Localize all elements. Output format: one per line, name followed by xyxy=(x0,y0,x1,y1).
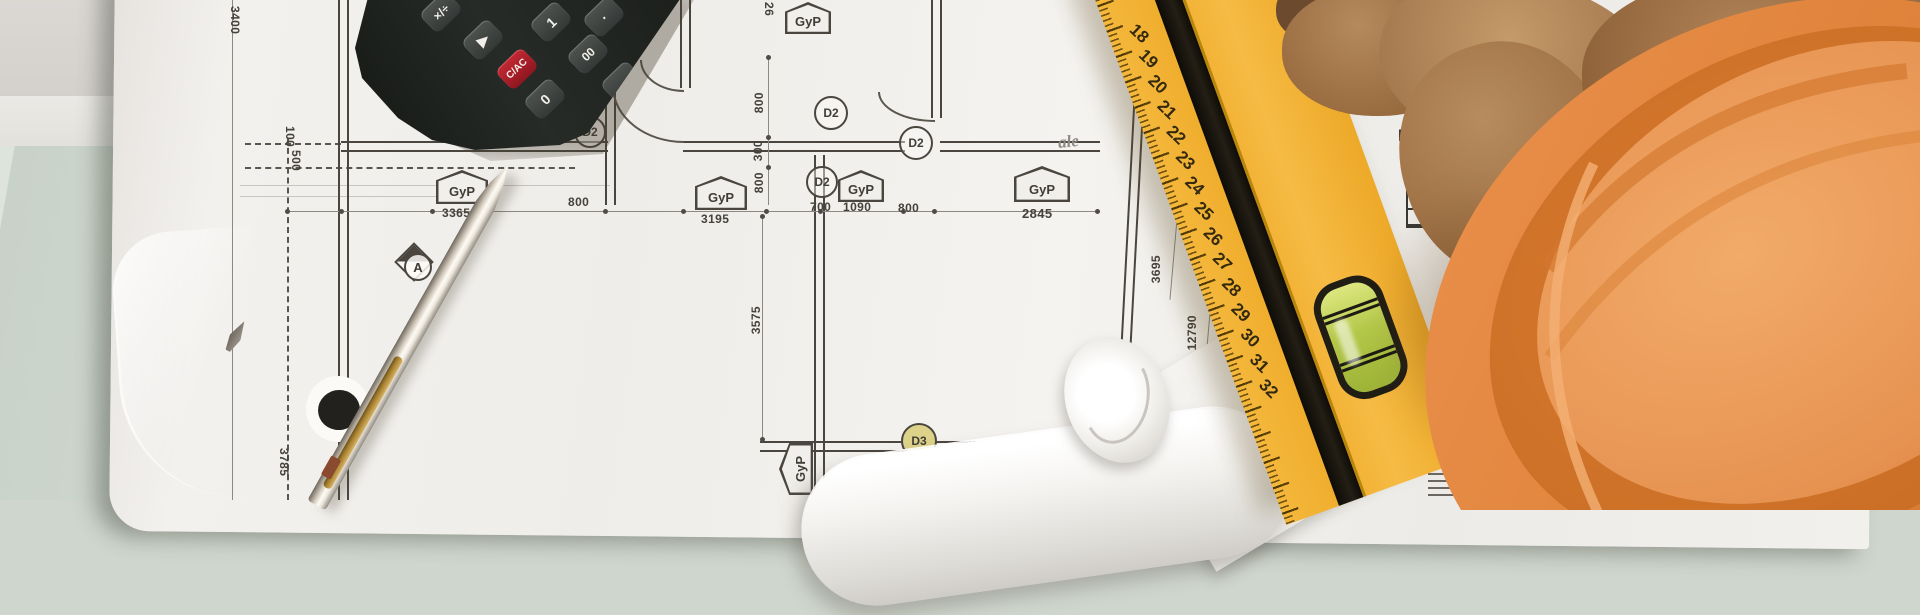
construction-desk-photo: { "scene": { "description": "Top-down ph… xyxy=(0,0,1920,500)
dimension-label: 3400 xyxy=(228,6,241,34)
dim-dot xyxy=(339,209,344,214)
calculator-key-clear: C/AC xyxy=(495,47,540,91)
dimension-label: 800 xyxy=(898,202,919,215)
dim-dot xyxy=(760,214,765,219)
dimension-label: 3575 xyxy=(750,306,763,334)
dim-dot xyxy=(681,209,686,214)
dimension-label: 800 xyxy=(753,172,766,193)
dimension-label: 26 xyxy=(762,2,775,16)
hardhat-shell xyxy=(1330,0,1920,510)
material-tag-text: GyP xyxy=(840,172,882,200)
key-label: 0 xyxy=(537,91,554,108)
dashed-axis-vertical xyxy=(287,138,289,500)
dim-dot xyxy=(285,209,290,214)
door-tag-d2: D2 xyxy=(899,126,933,160)
dimension-label: 3695 xyxy=(1150,255,1163,283)
dimension-label: 500 xyxy=(289,150,302,171)
key-label: ▶ xyxy=(473,30,493,50)
door-tag-d2: D2 xyxy=(806,166,838,198)
wall-main-horizontal-2 xyxy=(683,141,905,152)
key-label: ×/÷ xyxy=(430,1,452,23)
dimension-chain-vertical-mid xyxy=(768,55,769,205)
key-label: C/AC xyxy=(504,57,529,82)
dimension-label: 100 xyxy=(283,126,296,147)
grid-marker-letter: A xyxy=(413,260,422,275)
material-tag-gyp: GyP xyxy=(838,170,884,202)
calculator-key-dot: · xyxy=(582,0,627,39)
dim-dot xyxy=(760,437,765,442)
dimension-label: 700 xyxy=(810,201,831,214)
dim-dot xyxy=(766,55,771,60)
key-label: 1 xyxy=(543,14,560,31)
dim-dot xyxy=(932,209,937,214)
material-tag-gyp: GyP xyxy=(695,176,747,210)
material-tag-text: GyP xyxy=(697,178,745,208)
material-tag-gyp: GyP xyxy=(785,2,831,34)
pencil-construction-line-1 xyxy=(240,185,610,186)
door-tag-text: D2 xyxy=(814,175,829,189)
dim-dot xyxy=(603,209,608,214)
dimension-label: 2845 xyxy=(1022,207,1053,221)
material-tag-gyp: GyP xyxy=(1014,166,1070,202)
calculator-key-arrow: ▶ xyxy=(461,18,506,62)
dimension-label: 300 xyxy=(752,140,765,161)
grid-marker-a: A xyxy=(404,253,432,281)
door-tag-text: D2 xyxy=(908,136,923,150)
calculator-key-0: 0 xyxy=(523,77,568,121)
door-tag-d2: D2 xyxy=(814,96,848,130)
material-tag-text: GyP xyxy=(1016,168,1068,200)
calculator-key-multiply-divide: ×/÷ xyxy=(419,0,464,34)
dim-dot xyxy=(766,135,771,140)
door-tag-text: D3 xyxy=(911,434,926,448)
dimension-line-vertical-left xyxy=(232,0,233,500)
handwritten-note: ale xyxy=(1057,131,1080,153)
dimension-label: 800 xyxy=(753,92,766,113)
material-tag-text: GyP xyxy=(787,4,829,32)
dimension-chain-horizontal xyxy=(287,211,1100,212)
dim-dot xyxy=(1095,209,1100,214)
calculator-key-1: 1 xyxy=(529,0,574,44)
key-label: 00 xyxy=(578,44,597,63)
dim-dot xyxy=(430,209,435,214)
calculator-key-00: 00 xyxy=(566,32,611,76)
hard-hat xyxy=(1330,0,1920,510)
key-label: · xyxy=(597,10,611,25)
door-tag-text: D2 xyxy=(823,106,838,120)
dimension-label: 3785 xyxy=(277,448,290,476)
material-tag-text: GyP xyxy=(781,445,811,493)
dim-dot xyxy=(764,209,769,214)
door-swing-arc-3 xyxy=(878,92,935,122)
dim-dot xyxy=(766,165,771,170)
dimension-label: 800 xyxy=(568,196,589,209)
dimension-label: 3195 xyxy=(701,213,729,226)
dimension-label: 1090 xyxy=(843,201,871,214)
